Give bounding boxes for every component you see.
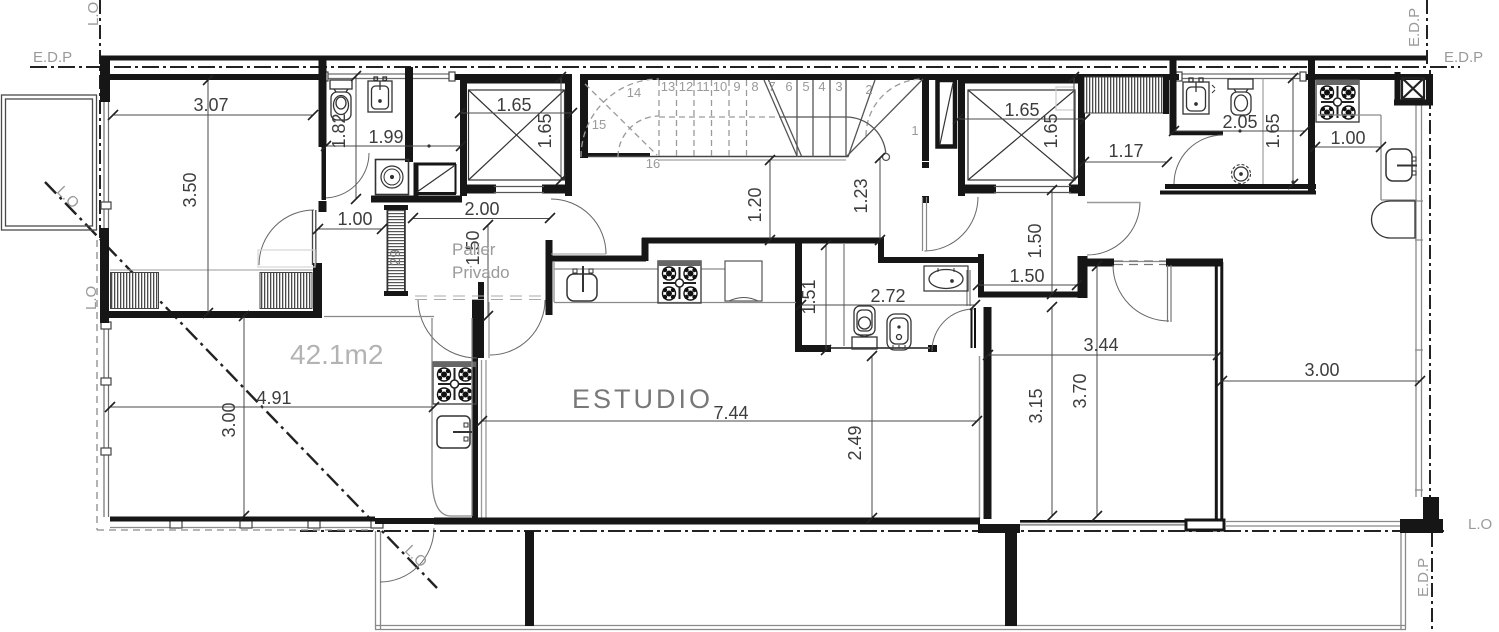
svg-text:11: 11 [696,79,710,94]
svg-text:7.44: 7.44 [713,403,748,423]
svg-text:1.00: 1.00 [1330,128,1365,148]
svg-text:4: 4 [818,79,825,94]
svg-text:42.1m2: 42.1m2 [290,339,383,370]
svg-text:29: 29 [387,249,404,266]
svg-text:2: 2 [865,82,872,97]
svg-text:6: 6 [785,79,792,94]
svg-text:10: 10 [713,79,727,94]
svg-text:15: 15 [592,117,606,132]
svg-text:13: 13 [661,79,675,94]
svg-text:1.17: 1.17 [1108,141,1143,161]
svg-text:8: 8 [751,79,758,94]
svg-text:7: 7 [768,79,775,94]
svg-text:5: 5 [802,79,809,94]
svg-text:1.65: 1.65 [1041,113,1061,148]
svg-text:L.O: L.O [85,2,102,26]
svg-text:2.00: 2.00 [464,199,499,219]
svg-text:E.D.P: E.D.P [33,49,72,66]
svg-text:1.50: 1.50 [1025,223,1045,258]
svg-text:ESTUDIO: ESTUDIO [572,384,713,414]
svg-text:3.70: 3.70 [1070,373,1090,408]
svg-text:1.99: 1.99 [368,127,403,147]
svg-text:1.65: 1.65 [1263,113,1283,148]
svg-text:1.82: 1.82 [329,113,349,148]
svg-text:1.65: 1.65 [496,95,531,115]
svg-text:2.49: 2.49 [845,425,865,460]
svg-text:3.15: 3.15 [1026,388,1046,423]
svg-text:1.20: 1.20 [745,187,765,222]
svg-text:4.91: 4.91 [256,388,291,408]
svg-text:Palier: Palier [452,240,496,259]
svg-text:1.65: 1.65 [1004,100,1039,120]
svg-text:3: 3 [835,79,842,94]
svg-text:L.O: L.O [83,286,100,310]
svg-text:1.51: 1.51 [799,279,819,314]
svg-text:14: 14 [627,85,641,100]
svg-text:1: 1 [911,123,918,138]
svg-text:Privado: Privado [452,263,510,282]
svg-text:2.72: 2.72 [870,286,905,306]
svg-text:E.D.P: E.D.P [1406,8,1423,47]
svg-text:3.44: 3.44 [1083,335,1118,355]
svg-text:12: 12 [679,79,693,94]
svg-text:3.50: 3.50 [180,172,200,207]
svg-text:1.00: 1.00 [337,209,372,229]
svg-text:L.O: L.O [1468,516,1492,533]
svg-text:16: 16 [646,156,660,171]
svg-text:3.00: 3.00 [1304,360,1339,380]
svg-text:9: 9 [733,79,740,94]
svg-text:1.23: 1.23 [851,178,871,213]
svg-text:E.D.P: E.D.P [1444,49,1483,66]
svg-text:3.07: 3.07 [193,95,228,115]
svg-text:2.05: 2.05 [1222,112,1257,132]
svg-text:E.D.P: E.D.P [1415,558,1432,597]
svg-text:1.50: 1.50 [1009,266,1044,286]
svg-text:1.65: 1.65 [535,113,555,148]
svg-text:3.00: 3.00 [219,402,239,437]
